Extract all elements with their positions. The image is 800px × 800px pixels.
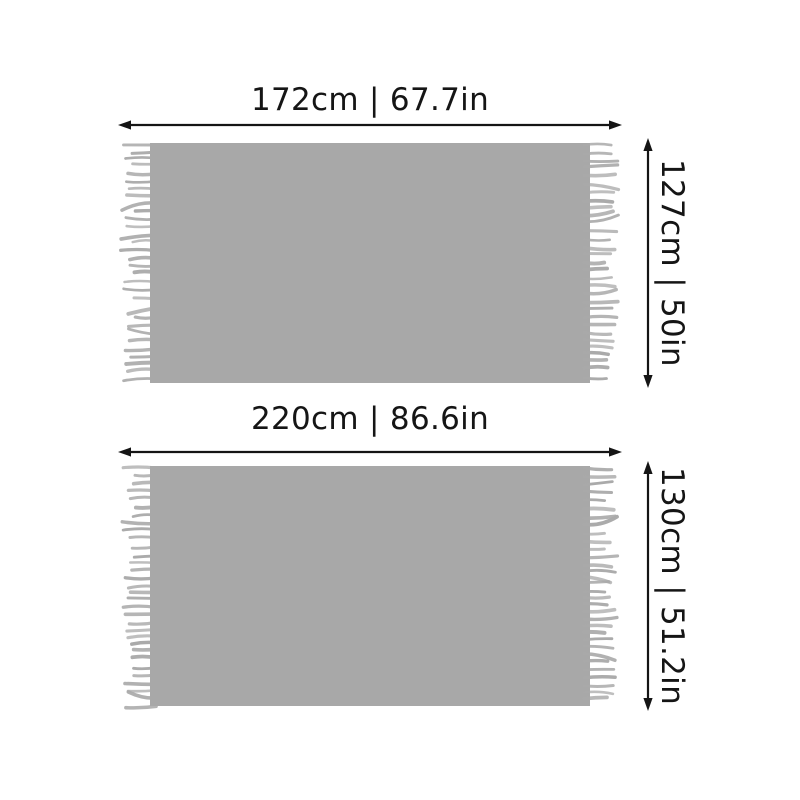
height-dimension-label: 127cm | 50in — [650, 143, 694, 383]
width-arrow — [117, 444, 623, 460]
blanket-figure-1: 172cm | 67.7in 127cm | 50in — [0, 84, 800, 394]
width-arrow — [117, 117, 623, 133]
width-dimension-label: 172cm | 67.7in — [120, 84, 620, 116]
fringe-right-icon — [584, 460, 622, 712]
blanket-body — [150, 143, 590, 383]
blanket-graphic — [120, 143, 620, 383]
height-dimension-label: 130cm | 51.2in — [650, 466, 694, 706]
blanket-body — [150, 466, 590, 706]
fringe-right-icon — [584, 137, 622, 389]
blanket-size-diagram: 172cm | 67.7in 127cm | 50in 220cm | 86.6… — [0, 0, 800, 800]
blanket-graphic — [120, 466, 620, 706]
blanket-figure-2: 220cm | 86.6in 130cm | 51.2in — [0, 403, 800, 718]
width-dimension-label: 220cm | 86.6in — [120, 403, 620, 435]
